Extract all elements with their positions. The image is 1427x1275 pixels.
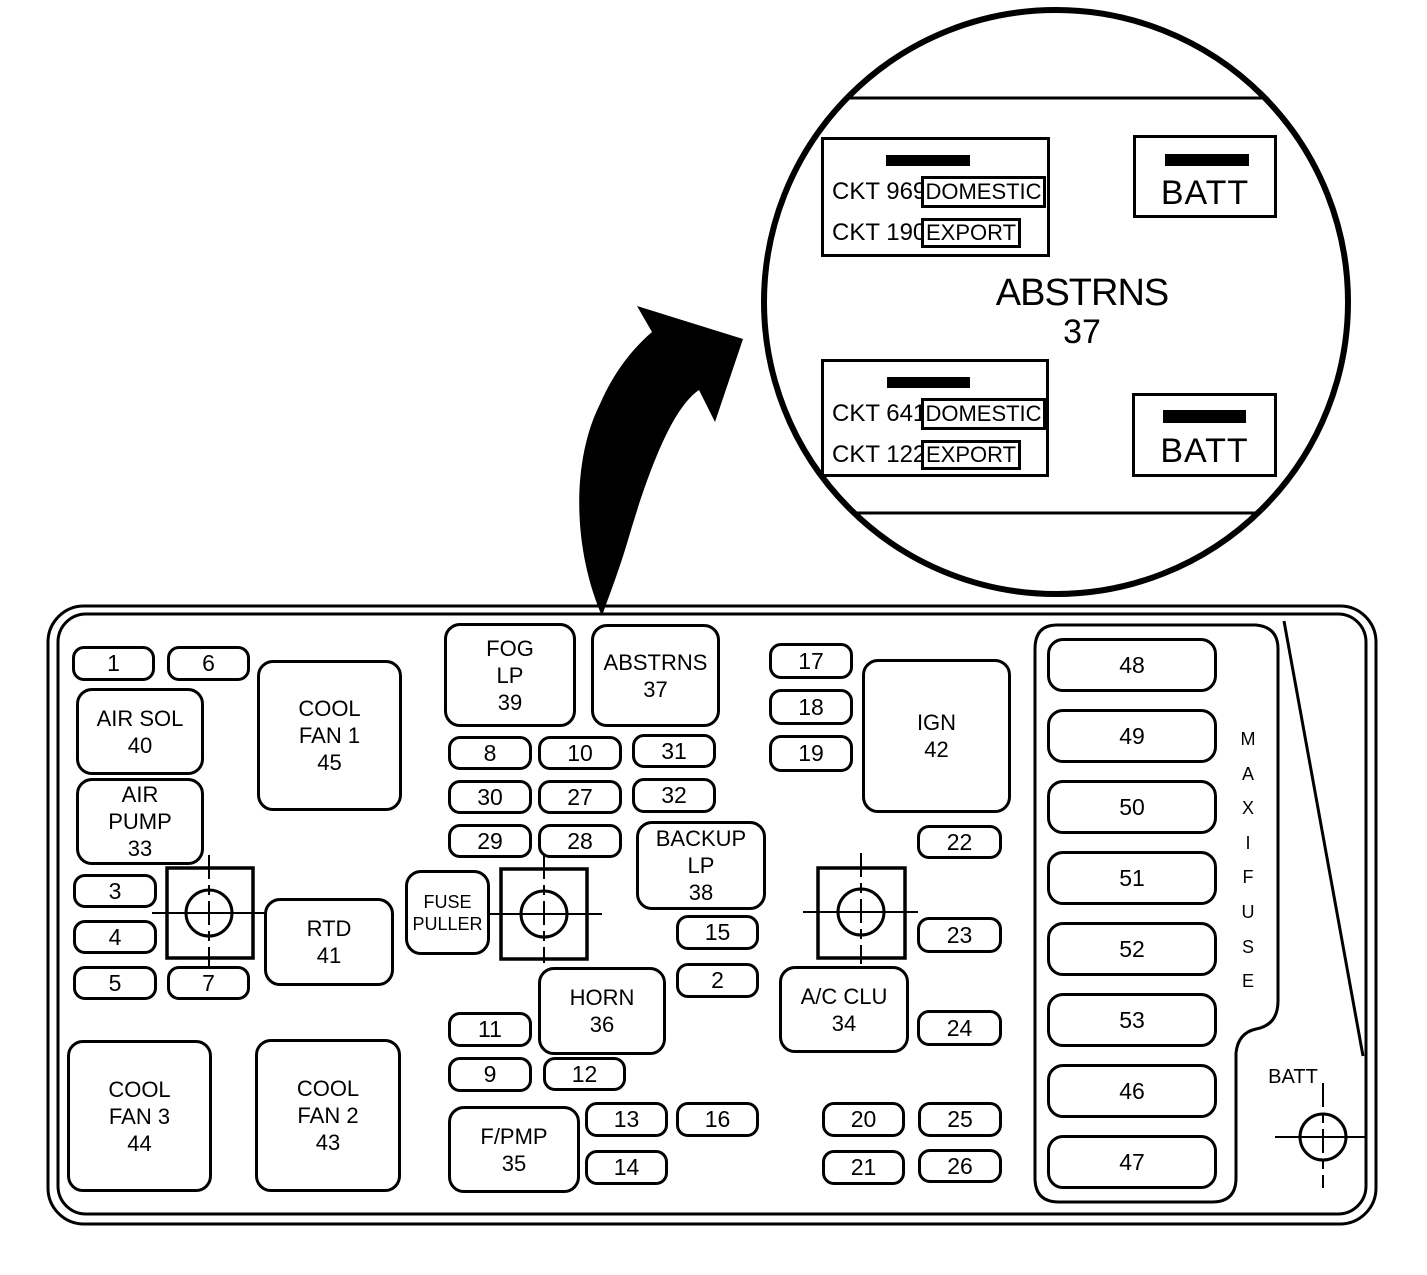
fuse-label: 1 <box>107 650 120 677</box>
fuse-label: 49 <box>1119 723 1145 750</box>
fuse-6: 6 <box>167 646 250 681</box>
fuse-label-line: FAN 1 <box>299 722 360 749</box>
fuse-8: 8 <box>448 736 532 770</box>
fuse-label: 5 <box>109 970 122 997</box>
maxifuse-letter: I <box>1234 826 1262 861</box>
fuse-label: 23 <box>947 922 973 949</box>
fuse-cool-fan-2-43: COOLFAN 243 <box>255 1039 401 1192</box>
maxifuse-letter: U <box>1234 895 1262 930</box>
fuse-label-line: 38 <box>689 879 713 906</box>
connector-box-bottom: CKT 641 DOMESTIC CKT 122 EXPORT <box>821 359 1049 477</box>
fuse-11: 11 <box>448 1012 532 1047</box>
fuse-12: 12 <box>543 1057 626 1091</box>
maxifuse-letter: M <box>1234 722 1262 757</box>
batt-terminal-bottom: BATT <box>1132 393 1277 477</box>
fuse-label-line: 42 <box>924 736 948 763</box>
batt-stud-label: BATT <box>1262 1066 1324 1089</box>
variant-tag: EXPORT <box>921 440 1021 470</box>
fuse-label-line: 37 <box>643 676 667 703</box>
fuse-10: 10 <box>538 736 622 770</box>
variant-tag: EXPORT <box>921 218 1021 248</box>
fuse-26: 26 <box>918 1149 1002 1183</box>
fuse-label: 25 <box>947 1106 973 1133</box>
fuse-13: 13 <box>585 1102 668 1137</box>
terminal-bar-icon <box>1165 154 1249 166</box>
fuse-25: 25 <box>918 1102 1002 1137</box>
fuse-cool-fan-3-44: COOLFAN 344 <box>67 1040 212 1192</box>
fuse-label: 53 <box>1119 1007 1145 1034</box>
fuse-label-line: 41 <box>317 942 341 969</box>
fuse-label: 11 <box>478 1016 502 1043</box>
mounting-bolt-icon <box>152 855 268 968</box>
maxifuse-47: 47 <box>1047 1135 1217 1189</box>
ckt-label: CKT 641 <box>832 402 926 426</box>
fuse-label-line: BACKUP <box>656 825 746 852</box>
mounting-bolt-icon <box>803 853 918 964</box>
batt-terminal-label: BATT <box>1136 174 1274 213</box>
maxifuse-51: 51 <box>1047 851 1217 905</box>
fuse-label: 16 <box>705 1106 731 1133</box>
fuse-label-line: 43 <box>316 1129 340 1156</box>
fuse-label: 24 <box>947 1015 973 1042</box>
fuse-label-line: COOL <box>297 1075 359 1102</box>
fuse-label: 51 <box>1119 865 1145 892</box>
terminal-bar-icon <box>886 155 970 166</box>
fuse-1: 1 <box>72 646 155 681</box>
fuse-air-sol-40: AIR SOL40 <box>76 688 204 775</box>
fuse-label-line: COOL <box>108 1076 170 1103</box>
fuse-label: 32 <box>661 782 687 809</box>
fuse-label: 7 <box>202 970 215 997</box>
maxifuse-letter: F <box>1234 860 1262 895</box>
fuse-label: 31 <box>661 738 687 765</box>
fuse-19: 19 <box>769 735 853 772</box>
fuse-label-line: LP <box>688 852 715 879</box>
fuse-label-line: 45 <box>317 749 341 776</box>
fuse-label: 30 <box>477 784 503 811</box>
fuse-label-line: ABSTRNS <box>604 649 708 676</box>
fuse-f-pmp-35: F/PMP35 <box>448 1106 580 1193</box>
fuse-label: 20 <box>851 1106 877 1133</box>
fuse-27: 27 <box>538 780 622 814</box>
fuse-backup-lp-38: BACKUPLP38 <box>636 821 766 910</box>
fuse-label-line: 35 <box>502 1150 526 1177</box>
fuse-5: 5 <box>73 966 157 1000</box>
fuse-label-line: FOG <box>486 635 534 662</box>
maxifuse-letter: A <box>1234 757 1262 792</box>
maxifuse-53: 53 <box>1047 993 1217 1047</box>
fuse-24: 24 <box>917 1010 1002 1046</box>
terminal-bar-icon <box>887 377 970 388</box>
fuse-label: 2 <box>711 967 724 994</box>
fuse-label: 22 <box>947 829 973 856</box>
magnified-fuse-number: 37 <box>957 314 1207 350</box>
fuse-14: 14 <box>585 1150 668 1185</box>
fuse-label-line: 39 <box>498 689 522 716</box>
fuse-label-line: A/C CLU <box>801 983 888 1010</box>
maxifuse-49: 49 <box>1047 709 1217 763</box>
fuse-label: 46 <box>1119 1078 1145 1105</box>
maxifuse-letter: S <box>1234 930 1262 965</box>
fuse-puller: FUSEPULLER <box>405 870 490 955</box>
fuse-label: 14 <box>614 1154 640 1181</box>
fuse-17: 17 <box>769 643 853 679</box>
fuse-30: 30 <box>448 780 532 814</box>
mounting-bolt-icon <box>486 855 602 963</box>
fuse-label-line: FUSE <box>423 891 471 913</box>
fuse-label: 27 <box>567 784 593 811</box>
fuse-label: 15 <box>705 919 731 946</box>
fuse-label-line: FAN 2 <box>297 1102 358 1129</box>
ckt-label: CKT 122 <box>832 443 926 467</box>
fuse-label-line: 44 <box>127 1130 151 1157</box>
fuse-rtd-41: RTD41 <box>264 898 394 986</box>
variant-tag: DOMESTIC <box>921 398 1046 430</box>
fuse-9: 9 <box>448 1057 532 1092</box>
fuse-label: 26 <box>947 1153 973 1180</box>
fuse-label: 29 <box>477 828 503 855</box>
magnified-fuse-title: ABSTRNS 37 <box>957 272 1207 350</box>
fuse-label: 48 <box>1119 652 1145 679</box>
fuse-label-line: 36 <box>590 1011 614 1038</box>
fuse-32: 32 <box>632 778 716 813</box>
callout-arrow-icon <box>579 306 743 616</box>
fuse-a-c-clu-34: A/C CLU34 <box>779 966 909 1053</box>
fuse-16: 16 <box>676 1102 759 1137</box>
fuse-label-line: PUMP <box>108 808 172 835</box>
maxifuse-letter: X <box>1234 791 1262 826</box>
fuse-label: 4 <box>109 924 122 951</box>
batt-stud-icon <box>1275 1083 1366 1188</box>
fuse-label-line: LP <box>497 662 524 689</box>
fuse-label: 13 <box>614 1106 640 1133</box>
fuse-label-line: 33 <box>128 835 152 862</box>
maxifuse-48: 48 <box>1047 638 1217 692</box>
fuse-label-line: 34 <box>832 1010 856 1037</box>
fuse-label-line: AIR SOL <box>97 705 184 732</box>
fuse-7: 7 <box>167 966 250 1000</box>
fuse-label-line: FAN 3 <box>109 1103 170 1130</box>
fuse-18: 18 <box>769 689 853 725</box>
fuse-31: 31 <box>632 734 716 768</box>
fuse-label: 9 <box>484 1061 497 1088</box>
fuse-label-line: F/PMP <box>480 1123 547 1150</box>
fuse-label-line: PULLER <box>412 913 482 935</box>
maxifuse-52: 52 <box>1047 922 1217 976</box>
fuse-15: 15 <box>676 915 759 950</box>
fuse-label: 28 <box>567 828 593 855</box>
fuse-label-line: RTD <box>307 915 352 942</box>
fuse-ign-42: IGN42 <box>862 659 1011 813</box>
fuse-label-line: IGN <box>917 709 956 736</box>
fuse-22: 22 <box>917 825 1002 859</box>
fuse-label: 52 <box>1119 936 1145 963</box>
batt-terminal-top: BATT <box>1133 135 1277 218</box>
fuse-label: 50 <box>1119 794 1145 821</box>
fuse-label-line: AIR <box>122 781 159 808</box>
fuse-3: 3 <box>73 874 157 908</box>
fuse-cool-fan-1-45: COOLFAN 145 <box>257 660 402 811</box>
fuse-label: 47 <box>1119 1149 1145 1176</box>
fuse-29: 29 <box>448 824 532 858</box>
fuse-label: 12 <box>572 1061 598 1088</box>
fuse-label: 18 <box>798 694 824 721</box>
maxifuse-vertical-label: MAXIFUSE <box>1234 722 1262 999</box>
terminal-bar-icon <box>1163 410 1246 423</box>
variant-tag: DOMESTIC <box>921 176 1046 208</box>
maxifuse-50: 50 <box>1047 780 1217 834</box>
fuse-label: 3 <box>109 878 122 905</box>
fuse-28: 28 <box>538 824 622 858</box>
batt-terminal-label: BATT <box>1135 432 1274 471</box>
maxifuse-46: 46 <box>1047 1064 1217 1118</box>
magnified-fuse-name: ABSTRNS <box>957 272 1207 314</box>
connector-box-top: CKT 969 DOMESTIC CKT 1901 EXPORT <box>821 137 1050 257</box>
fuse-fog-lp-39: FOGLP39 <box>444 623 576 727</box>
fuse-2: 2 <box>676 963 759 998</box>
fuse-horn-36: HORN36 <box>538 967 666 1055</box>
fuse-label-line: COOL <box>298 695 360 722</box>
underhood-fuse-block-diagram: CKT 969 DOMESTIC CKT 1901 EXPORT BATT AB… <box>0 0 1427 1275</box>
ckt-label: CKT 969 <box>832 180 926 204</box>
fuse-label: 17 <box>798 648 824 675</box>
fuse-air-pump-33: AIRPUMP33 <box>76 778 204 865</box>
fuse-label: 8 <box>484 740 497 767</box>
fuse-23: 23 <box>917 917 1002 953</box>
maxifuse-letter: E <box>1234 964 1262 999</box>
housing-slant-edge <box>1284 621 1363 1056</box>
fuse-label: 19 <box>798 740 824 767</box>
fuse-21: 21 <box>822 1150 905 1185</box>
fuse-label: 6 <box>202 650 215 677</box>
fuse-label: 10 <box>567 740 593 767</box>
fuse-4: 4 <box>73 920 157 954</box>
fuse-label-line: 40 <box>128 732 152 759</box>
fuse-abstrns-37: ABSTRNS37 <box>591 624 720 727</box>
fuse-label: 21 <box>851 1154 877 1181</box>
fuse-20: 20 <box>822 1102 905 1137</box>
fuse-label-line: HORN <box>570 984 635 1011</box>
